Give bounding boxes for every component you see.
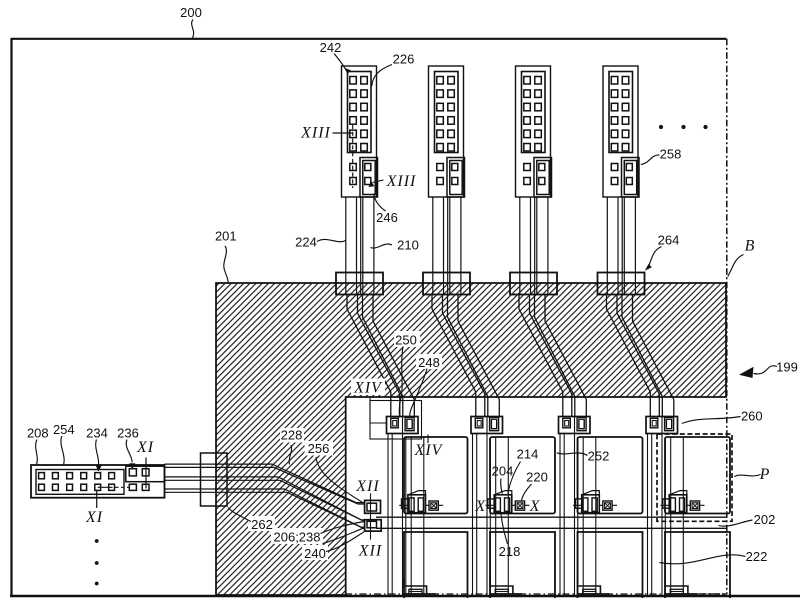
svg-text:252: 252 (588, 449, 610, 464)
svg-text:XI: XI (136, 439, 154, 456)
svg-text:X: X (529, 498, 541, 515)
svg-text:206;238: 206;238 (274, 530, 321, 545)
svg-text:202: 202 (754, 512, 776, 527)
svg-text:242: 242 (320, 40, 342, 55)
svg-text:228: 228 (281, 428, 303, 443)
svg-text:210: 210 (397, 238, 419, 253)
svg-text:234: 234 (86, 426, 108, 441)
svg-text:248: 248 (418, 355, 440, 370)
svg-text:256: 256 (308, 441, 330, 456)
svg-text:200: 200 (180, 5, 202, 20)
svg-text:XIII: XIII (300, 125, 331, 142)
svg-text:XIII: XIII (386, 173, 417, 190)
svg-text:B: B (745, 238, 756, 255)
svg-text:201: 201 (215, 228, 237, 243)
svg-text:224: 224 (295, 235, 317, 250)
svg-text:XII: XII (358, 543, 382, 560)
svg-text:XIV: XIV (353, 380, 383, 397)
svg-text:XI: XI (85, 509, 103, 526)
svg-text:XII: XII (355, 478, 379, 495)
svg-text:P: P (759, 466, 771, 483)
svg-text:XIV: XIV (414, 442, 444, 459)
svg-text:220: 220 (526, 470, 548, 485)
svg-text:X: X (474, 498, 486, 515)
svg-text:226: 226 (393, 52, 415, 67)
svg-text:218: 218 (499, 544, 521, 559)
svg-text:236: 236 (117, 426, 139, 441)
svg-text:204: 204 (492, 464, 514, 479)
svg-text:260: 260 (741, 409, 763, 424)
svg-text:246: 246 (376, 210, 398, 225)
svg-text:258: 258 (660, 147, 682, 162)
svg-text:214: 214 (517, 447, 539, 462)
svg-text:250: 250 (395, 333, 417, 348)
svg-text:264: 264 (658, 232, 680, 247)
svg-text:208: 208 (27, 426, 49, 441)
svg-text:240: 240 (304, 546, 326, 561)
svg-text:254: 254 (53, 422, 75, 437)
svg-text:262: 262 (251, 517, 273, 532)
svg-text:199: 199 (776, 360, 798, 375)
svg-text:222: 222 (746, 549, 768, 564)
